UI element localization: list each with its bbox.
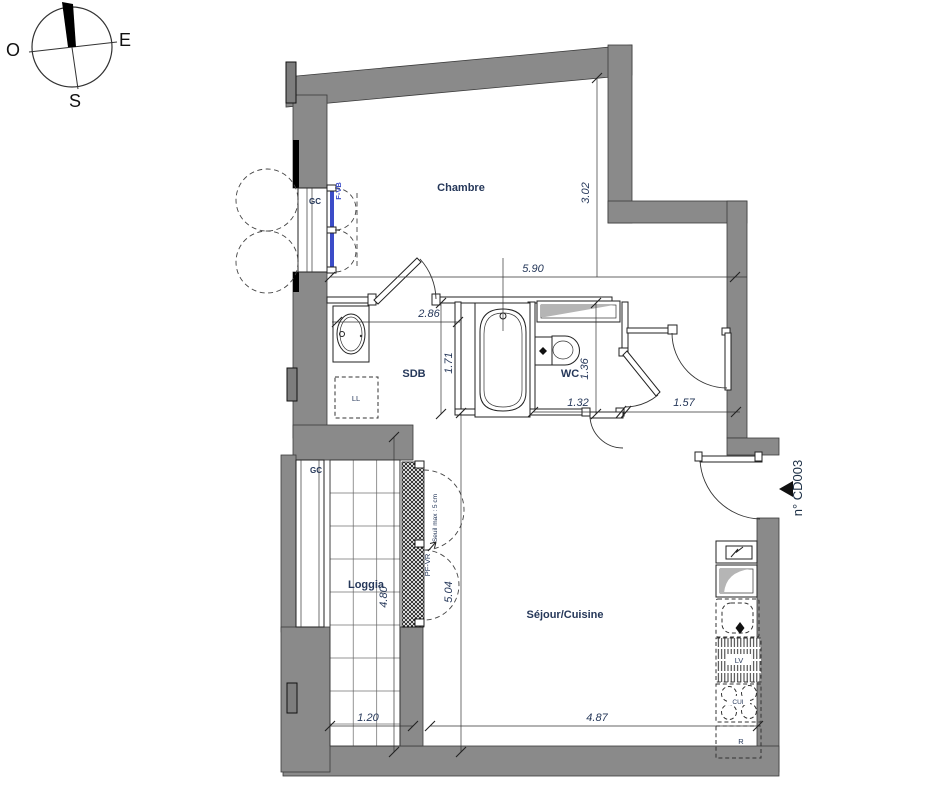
- dim-bathroom-width: 2.86: [417, 308, 440, 320]
- compass-east-label: E: [119, 30, 131, 50]
- washbasin-drain: [360, 335, 362, 337]
- fridge-label: R: [738, 737, 744, 746]
- dim-bathroom-height: 1.71: [443, 352, 455, 373]
- hall-sejour-door-swing: [590, 416, 623, 448]
- washing-machine-label: LL: [352, 394, 360, 403]
- floor-plan-canvas: Chambre SDB WC Loggia Séjour/Cuisine 5.9…: [0, 0, 926, 800]
- wall-right-upper: [608, 45, 632, 223]
- window-edge-cap-bottom: [293, 272, 299, 292]
- window-swing-outside: [236, 231, 298, 293]
- bedroom-door-swing: [420, 259, 436, 299]
- wall-sdb-bottom: [293, 425, 413, 460]
- room-label-bedroom: Chambre: [437, 182, 485, 194]
- dim-loggia-height: 4.80: [378, 585, 390, 607]
- toilet-bowl-inner: [553, 341, 573, 359]
- bedroom-entry-door-swing: [672, 333, 727, 388]
- floor-plan-svg: Chambre SDB WC Loggia Séjour/Cuisine 5.9…: [0, 0, 926, 800]
- cooktop-label: CUI: [732, 699, 743, 706]
- dim-loggia-width: 1.20: [357, 712, 379, 724]
- guardrail-window-label: GC: [309, 197, 321, 206]
- window-living-label: PF-VR: [423, 553, 432, 576]
- door-jamb: [668, 325, 677, 334]
- bedroom-door-leaf: [374, 258, 421, 304]
- window-hinge: [415, 461, 424, 468]
- wall-right-mid: [727, 201, 747, 438]
- wall-entry-jut: [727, 438, 779, 455]
- pilaster-left-mid: [287, 368, 297, 401]
- dim-hall-width: 1.57: [673, 397, 695, 409]
- bathroom-fixtures: [333, 258, 620, 418]
- cooktop-burner: [742, 704, 757, 719]
- room-label-living: Séjour/Cuisine: [526, 609, 603, 621]
- dim-bedroom-height: 3.02: [580, 182, 592, 203]
- compass-north-needle: [62, 2, 76, 47]
- loggia-guardrail: [296, 460, 324, 627]
- wall-step: [608, 201, 747, 223]
- room-label-bathroom: SDB: [402, 368, 425, 380]
- guardrail-loggia-label: GC: [310, 466, 322, 475]
- dim-living-height: 5.04: [443, 581, 455, 602]
- door-jamb: [695, 452, 702, 461]
- partition-bedroom-left: [327, 297, 370, 303]
- compass-west-label: O: [6, 40, 20, 60]
- wc-door-leaf: [623, 351, 660, 396]
- wall-left-mid: [293, 272, 327, 438]
- door-jamb: [755, 452, 762, 461]
- appliance-box: [716, 599, 759, 637]
- bedroom-entry-door-leaf: [725, 333, 731, 390]
- window-swing-living: [424, 470, 464, 550]
- window-hinge: [415, 540, 424, 547]
- dim-toilet-width: 1.32: [567, 397, 588, 409]
- window-hinge: [327, 227, 336, 233]
- appliance-symbol: [736, 622, 745, 634]
- wall-loggia-left: [281, 455, 296, 632]
- threshold-note-label: Seuil max : 5 cm: [432, 494, 439, 542]
- compass-south-label: S: [69, 91, 81, 111]
- partition-sdb-bath: [455, 302, 461, 415]
- window-swing-inside: [335, 230, 356, 272]
- window-hinge: [415, 619, 424, 626]
- toilet-bowl: [552, 336, 580, 365]
- dishwasher-label: LV: [735, 656, 744, 665]
- wall-top: [286, 45, 632, 107]
- wall-bottom: [283, 746, 779, 776]
- main-entry-door-swing: [700, 460, 760, 519]
- window-edge-cap-top: [293, 140, 299, 188]
- main-entry-door-leaf: [700, 456, 762, 462]
- partition-hall-top: [627, 328, 672, 333]
- wc-door-swing: [625, 395, 658, 407]
- dim-bedroom-width: 5.90: [522, 263, 544, 275]
- door-number-label: n° CD003: [790, 460, 805, 517]
- pilaster-left-low: [287, 683, 297, 713]
- room-label-toilet: WC: [561, 368, 579, 380]
- dim-toilet-height: 1.36: [579, 357, 591, 379]
- threshold-arrow: [428, 542, 436, 551]
- pilaster-top-left: [286, 62, 296, 103]
- window-swing-outside: [236, 169, 298, 231]
- cooktop-burner: [722, 705, 737, 720]
- partition-wc-right: [622, 302, 628, 352]
- dim-living-width: 4.87: [586, 712, 608, 724]
- kitchen-column: [716, 541, 761, 758]
- compass-rose: O E S: [6, 2, 131, 111]
- window-bedroom-label: F-VB: [334, 182, 343, 200]
